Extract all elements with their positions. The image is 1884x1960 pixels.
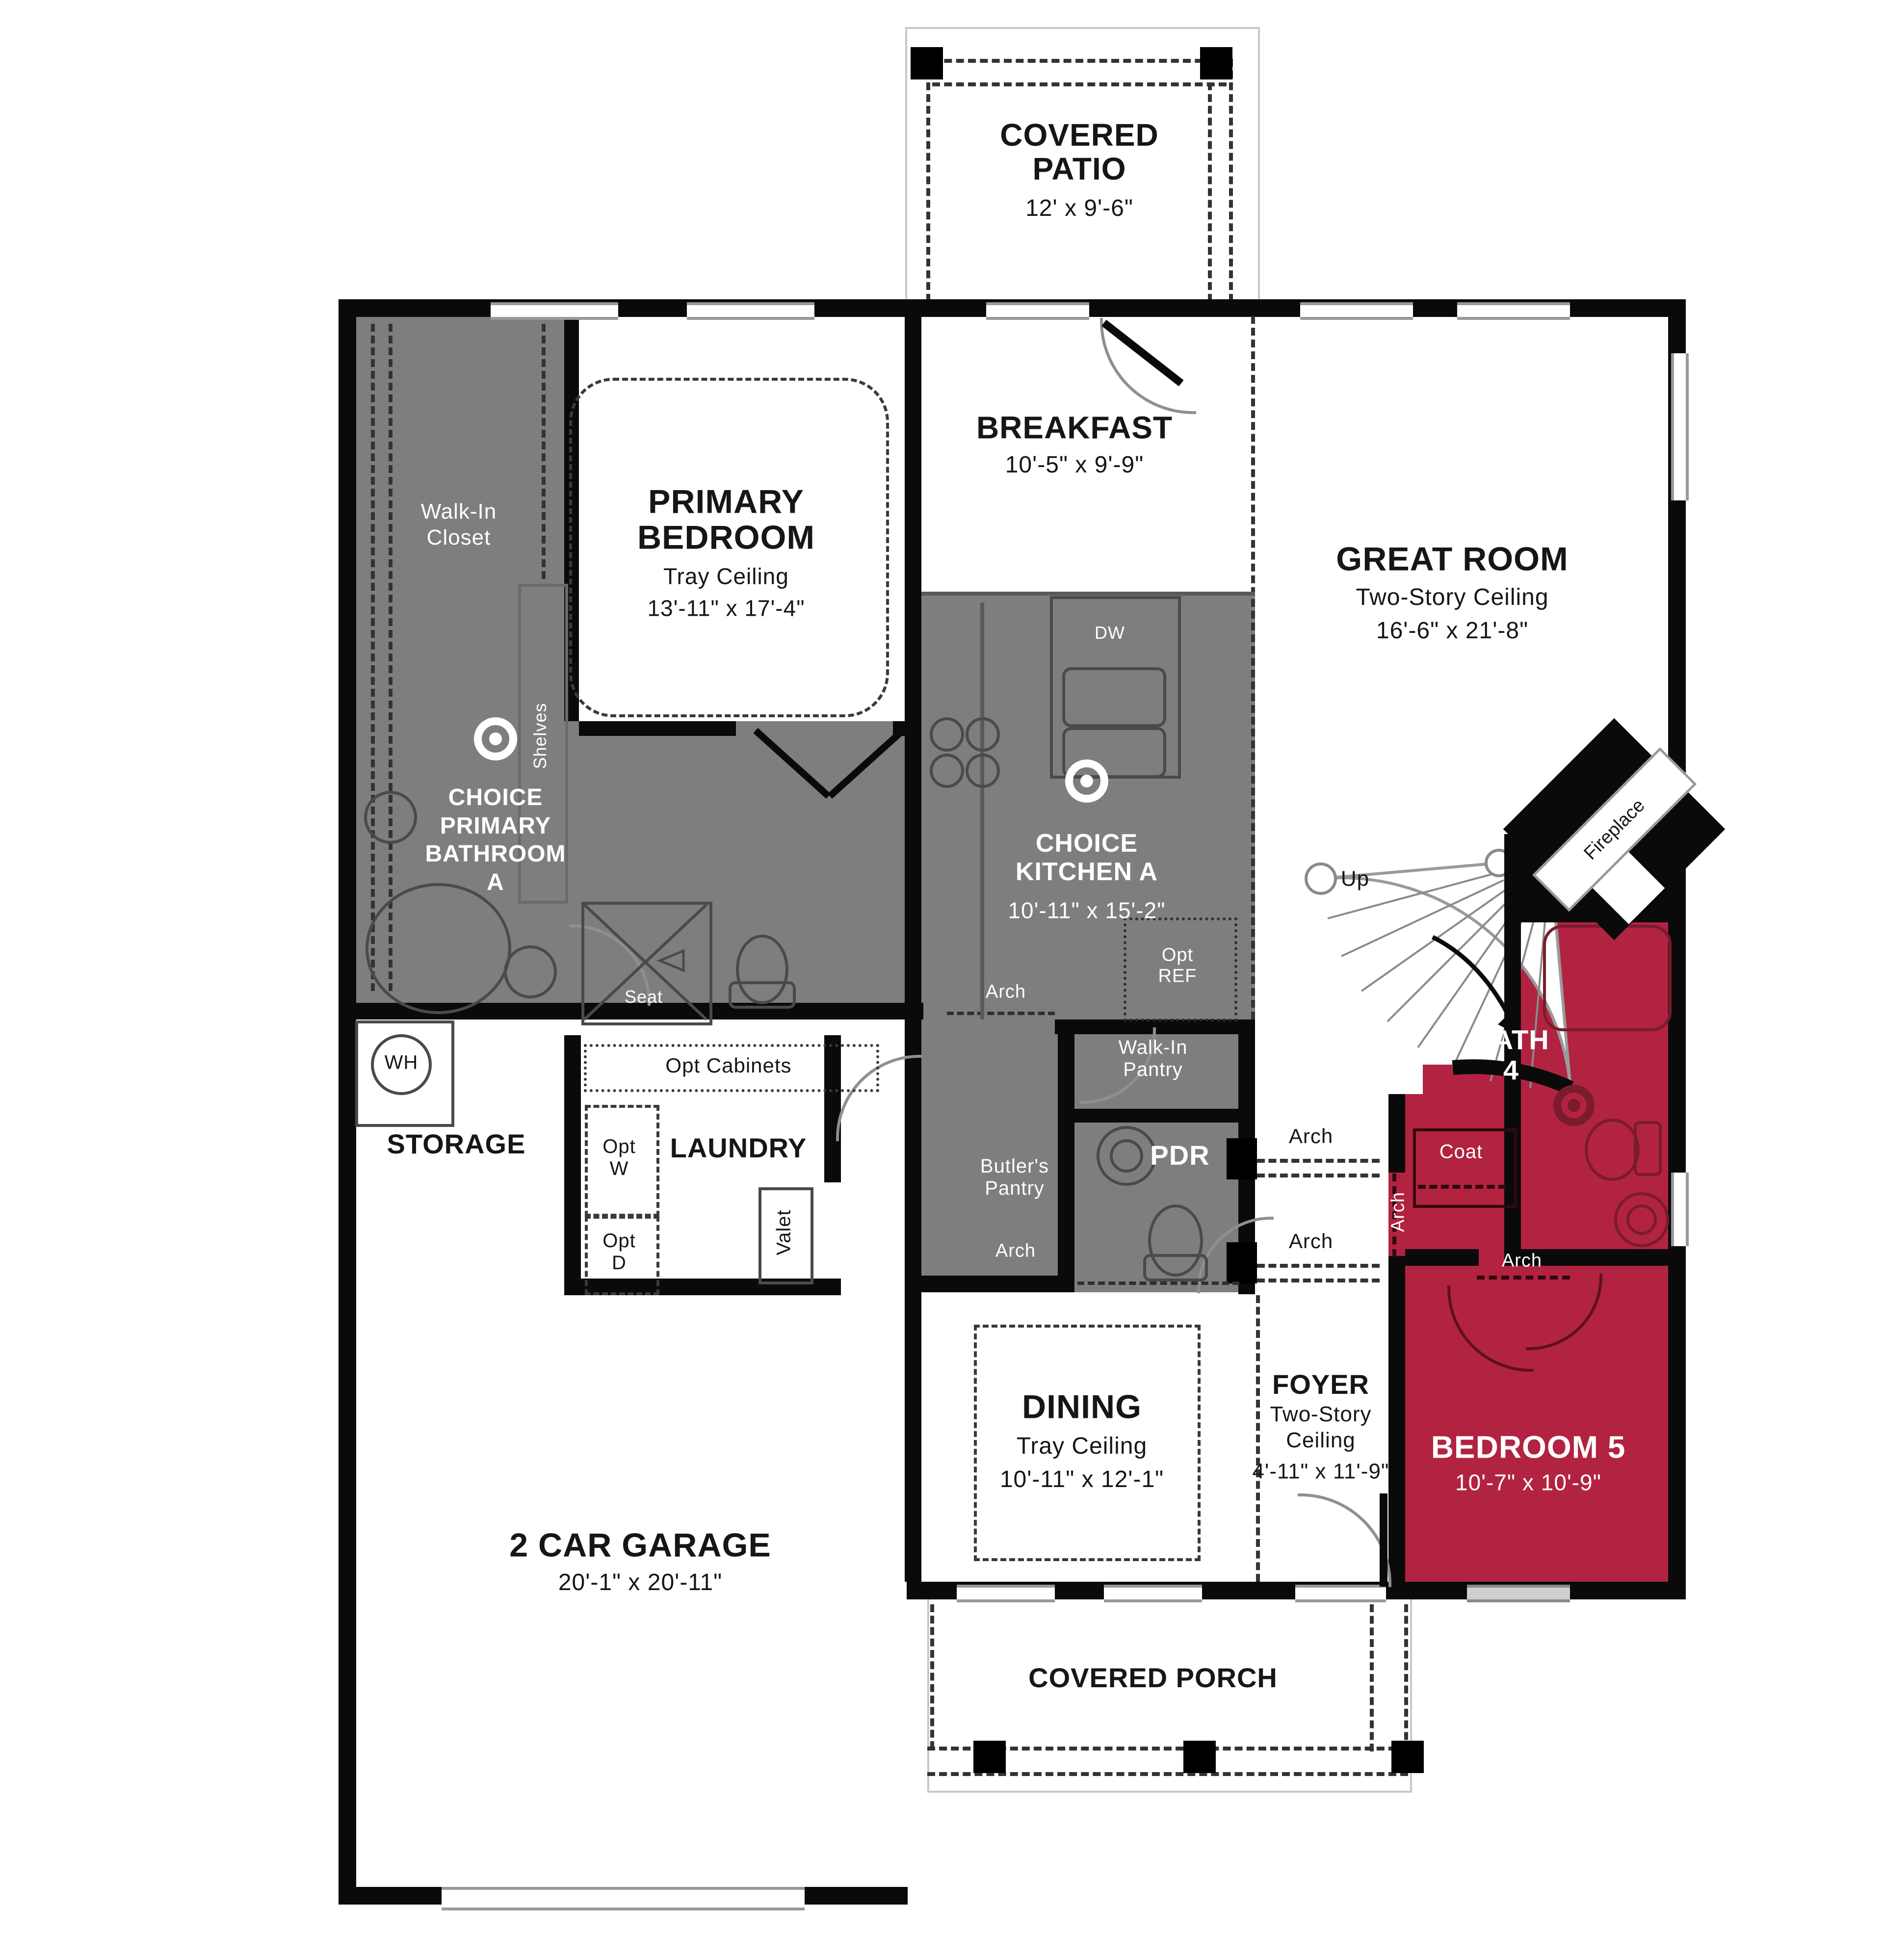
cooktop-burner [930,754,964,788]
patio-post [1200,47,1232,79]
room-label-primary-bedroom: PRIMARY BEDROOM [637,484,815,556]
toilet [1585,1119,1640,1181]
closet-rod-line [371,324,375,991]
wall [1058,1019,1074,1292]
open-boundary [1256,1295,1260,1582]
dashed-line [1370,1604,1374,1751]
room-label-coat: Coat [1439,1141,1483,1163]
room-label-pdr: PDR [1150,1140,1209,1171]
room-dims-dining: 10'-11" x 12'-1" [1000,1465,1164,1494]
room-ceiling-foyer: Two-Story Ceiling [1270,1402,1371,1454]
valet-label: Valet [773,1209,795,1255]
room-label-great-room: GREAT ROOM [1336,541,1568,577]
arch-opening [1257,1174,1380,1177]
dashed-line [1208,59,1212,302]
toilet-tank [1143,1254,1208,1281]
arch-opening [1257,1159,1380,1163]
room-ceiling-great-room: Two-Story Ceiling [1356,583,1548,612]
room-ceiling-primary-bedroom: Tray Ceiling [663,563,789,590]
room-dims-garage: 20'-1" x 20'-11" [558,1568,722,1597]
room-label-walk-in-pantry: Walk-In Pantry [1118,1037,1187,1081]
counter-line [921,592,1255,596]
wall [1405,1249,1479,1266]
dashed-line [930,1604,934,1749]
arch-opening [1077,1281,1239,1285]
opt-washer-label: Opt W [602,1136,635,1180]
window [986,302,1089,320]
room-dims-great-room: 16'-6" x 21'-8" [1376,617,1528,645]
window [1467,1585,1570,1602]
arch-label: Arch [1289,1229,1333,1253]
water-heater-label: WH [385,1052,419,1074]
room-label-kitchen: CHOICE KITCHEN A [1016,829,1158,886]
wall [921,1276,1073,1292]
floor-plan: COVERED PATIO 12' x 9'-6" [0,0,1884,1960]
room-dims-kitchen: 10'-11" x 15'-2" [1008,897,1165,924]
arch-label: Arch [1388,1192,1409,1232]
window [1300,302,1413,320]
room-label-laundry: LAUNDRY [670,1133,807,1163]
room-dims-foyer: 4'-11" x 11'-9" [1252,1459,1389,1485]
sink [504,945,557,998]
room-label-covered-patio: COVERED PATIO [1000,118,1159,186]
porch-post [1183,1741,1216,1773]
arch-label: Arch [995,1241,1036,1262]
window [491,302,618,320]
room-dims-breakfast: 10'-5" x 9'-9" [1005,451,1144,479]
sink [364,791,417,844]
room-label-foyer: FOYER [1272,1369,1369,1400]
open-boundary [1251,316,1255,1019]
wall [339,299,356,1905]
dashed-line [932,59,1227,63]
closet-rod-line [1418,1185,1506,1189]
sink [1626,1204,1657,1235]
seat-label: Seat [625,987,663,1007]
dashed-line [926,59,930,302]
room-label-dining: DINING [1022,1389,1142,1425]
room-dims-primary-bedroom: 13'-11" x 17'-4" [647,595,805,622]
shelves-label: Shelves [530,703,550,769]
arch-opening [1477,1276,1570,1280]
room-label-storage: STORAGE [387,1129,526,1159]
bathtub [1543,925,1672,1031]
wall [1388,1256,1405,1599]
toilet-tank [729,981,796,1009]
toilet-tank [1634,1121,1662,1176]
closet-rod-line [542,324,546,579]
window [1457,302,1570,320]
wall [1388,1094,1405,1173]
opt-cabinets-label: Opt Cabinets [665,1054,791,1077]
wall [1521,1249,1668,1266]
wall-stub [1227,1138,1257,1179]
opt-dryer-label: Opt D [602,1230,635,1274]
door-swing [1298,1493,1391,1587]
room-label-covered-porch: COVERED PORCH [1028,1663,1278,1693]
arch-opening [947,1012,1055,1015]
room-label-butlers-pantry: Butler's Pantry [980,1155,1049,1200]
room-label-walk-in-closet: Walk-In Closet [421,499,497,551]
bullseye-icon [1065,759,1108,803]
room-dims-covered-patio: 12' x 9'-6" [1025,194,1133,223]
cooktop-burner [966,717,1000,752]
arch-opening [1257,1264,1380,1268]
dashed-line [1229,59,1233,302]
wall [564,1035,581,1295]
wall [1074,1109,1255,1123]
garage-door [442,1887,805,1910]
porch-post [1391,1741,1424,1773]
arch-label: Arch [1502,1251,1542,1272]
bathtub [366,883,511,1014]
arch-opening [1257,1279,1380,1282]
cooktop-burner [966,754,1000,788]
opt-ref-label: Opt REF [1158,944,1197,986]
room-label-breakfast: BREAKFAST [976,411,1173,444]
dashed-line [1404,1604,1408,1751]
room-ceiling-dining: Tray Ceiling [1017,1432,1147,1461]
room-label-garage: 2 CAR GARAGE [509,1527,771,1563]
sink [1110,1139,1143,1173]
bullseye-icon [1553,1085,1595,1126]
room-label-primary-bathroom: CHOICE PRIMARY BATHROOM A [425,784,566,896]
closet-rod-line [389,324,392,991]
wall [1504,908,1521,1266]
porch-post [973,1741,1006,1773]
dashed-line [932,82,1227,86]
window [1671,353,1689,500]
coat-closet [1413,1128,1517,1208]
patio-post [911,47,943,79]
fireplace-label: Fireplace [1580,795,1649,864]
cooktop-burner [930,717,964,752]
room-label-bedroom5: BEDROOM 5 [1431,1430,1626,1464]
window [687,302,814,320]
wall [579,721,736,736]
window [1671,1173,1689,1246]
up-label: Up [1341,866,1369,892]
room-dims-bedroom5: 10'-7" x 10'-9" [1455,1469,1601,1496]
dishwasher-label: DW [1095,623,1125,643]
bullseye-icon [474,717,517,760]
wall [905,299,921,1582]
oven [1062,667,1166,727]
arch-label: Arch [1289,1124,1333,1148]
counter-line [980,602,984,1019]
room-label-bath4: BATH 4 [1473,1024,1549,1085]
door-leaf [1380,1493,1387,1587]
arch-label: Arch [986,982,1026,1003]
